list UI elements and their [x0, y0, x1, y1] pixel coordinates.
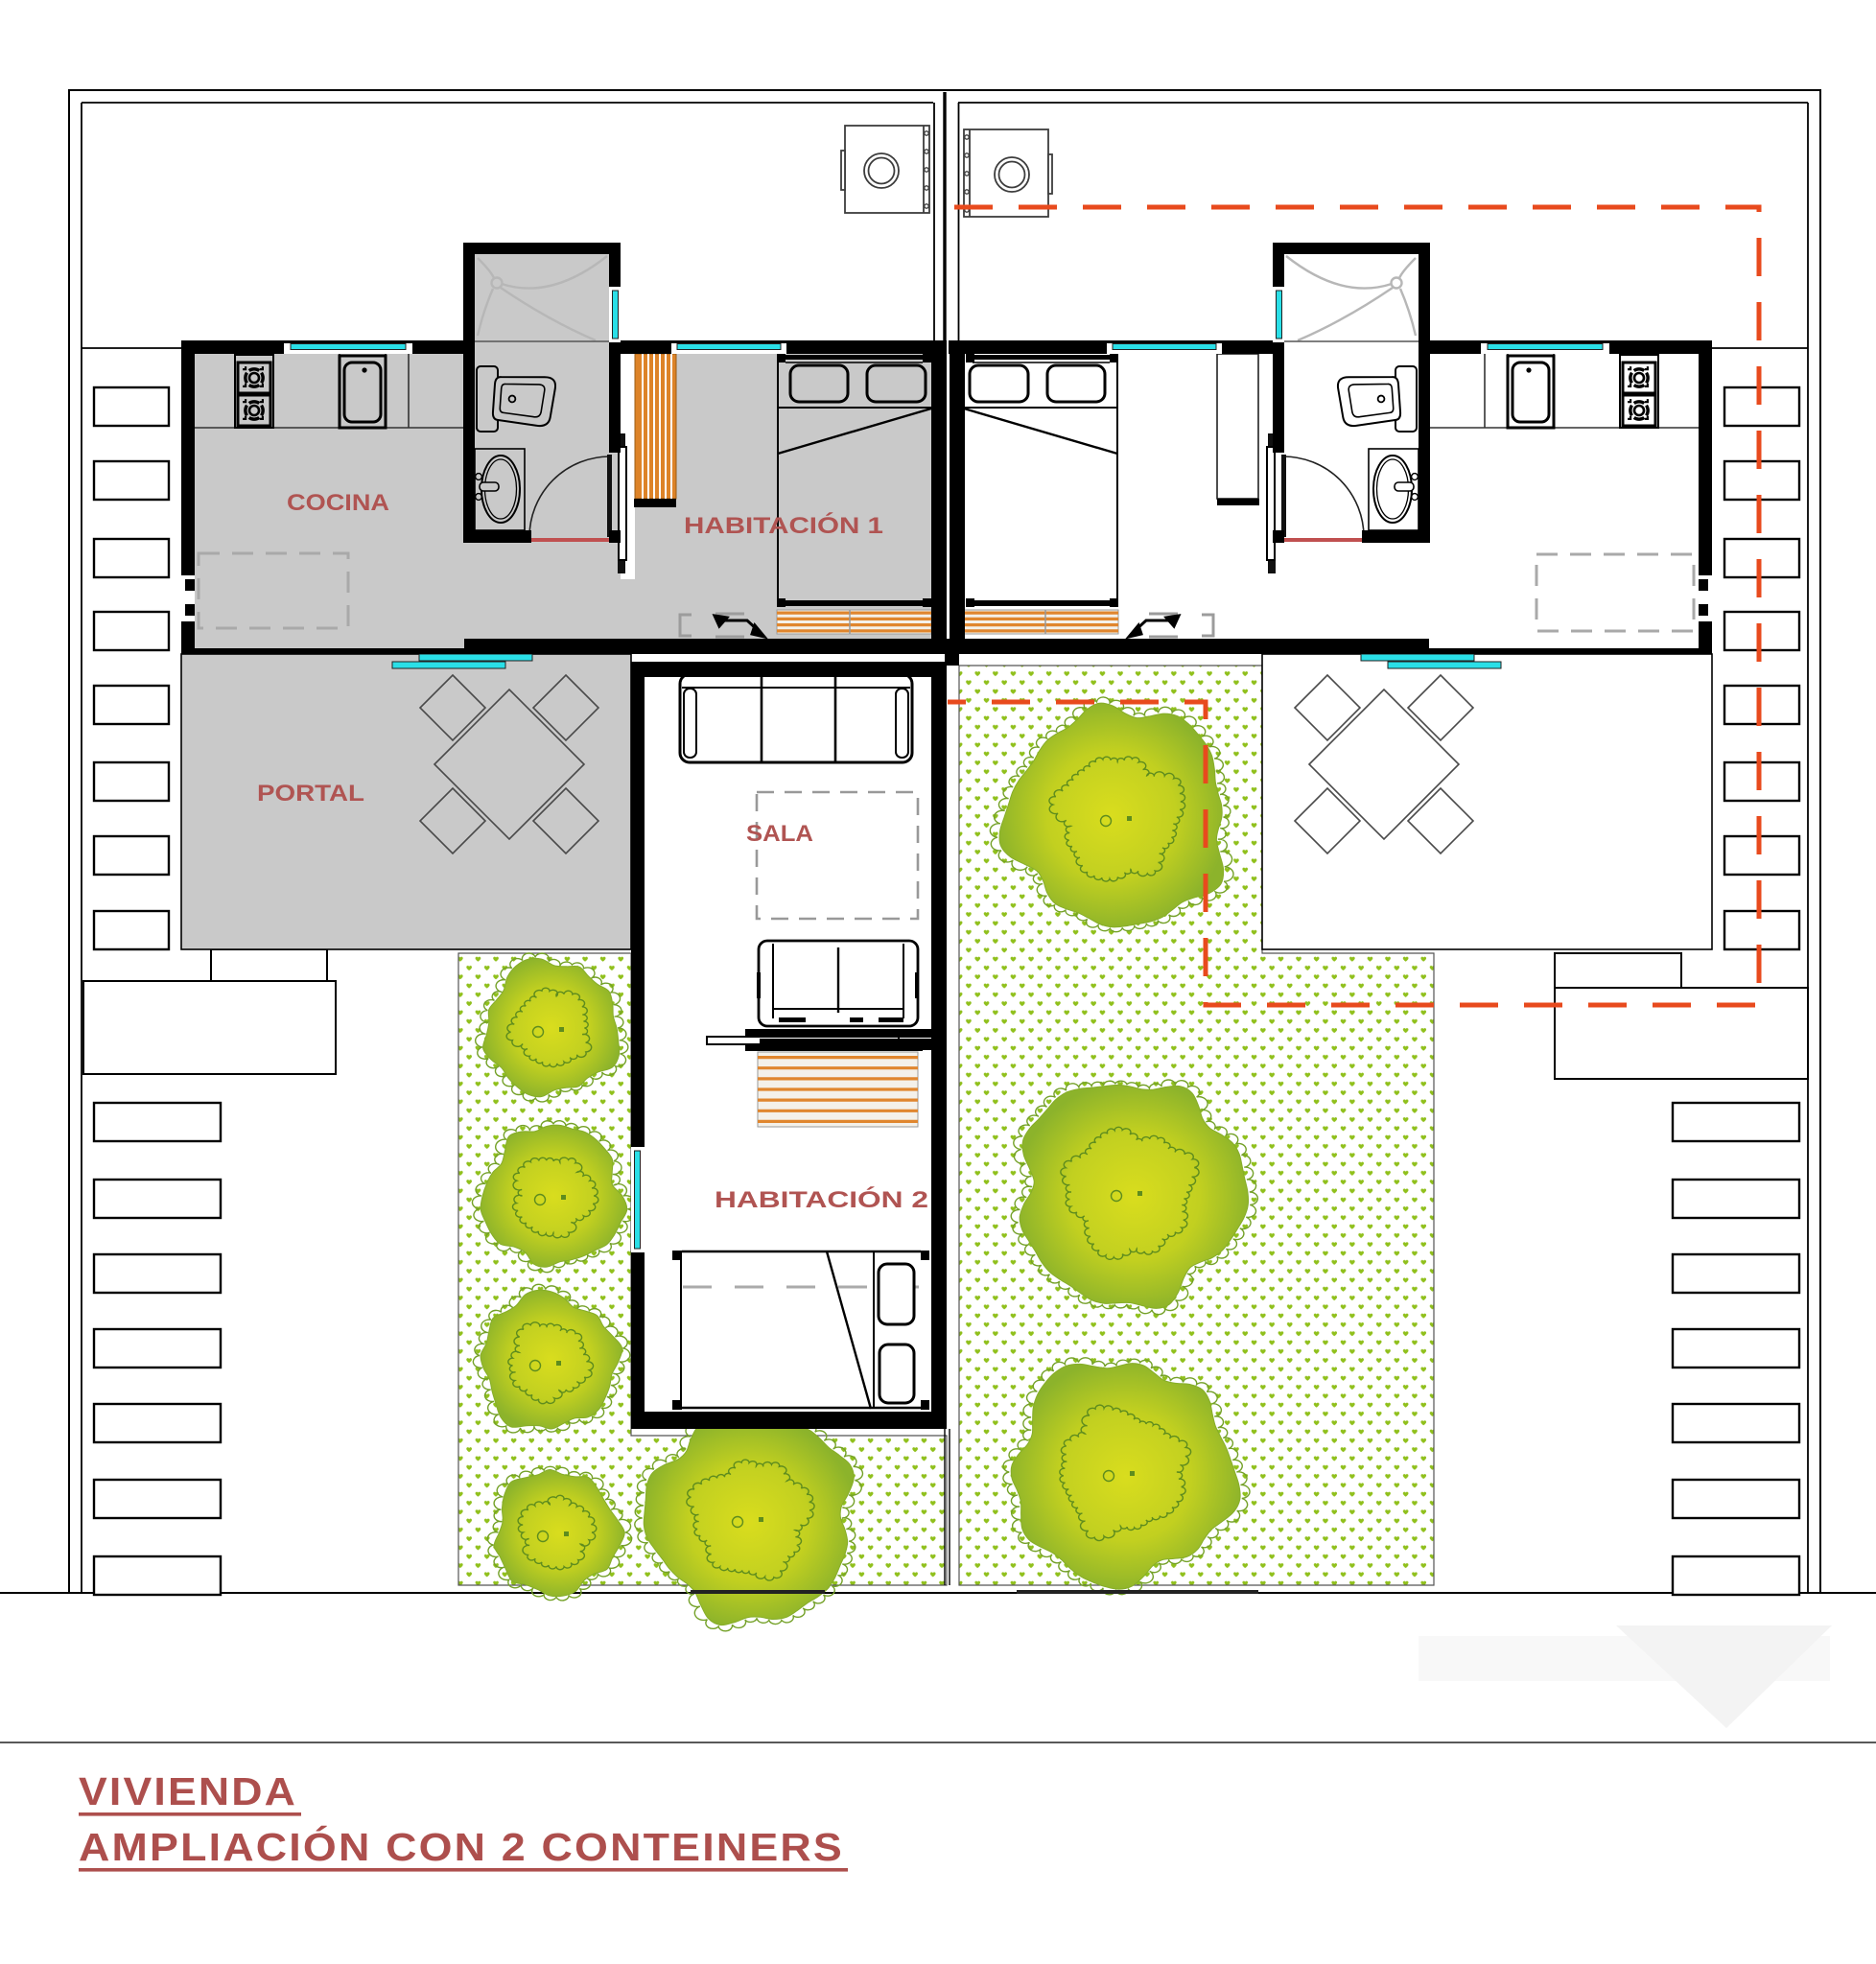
svg-text:AMPLIACIÓN CON 2 CONTEINERS: AMPLIACIÓN CON 2 CONTEINERS: [79, 1825, 844, 1869]
svg-text:HABITACIÓN 1: HABITACIÓN 1: [684, 512, 883, 539]
svg-text:SALA: SALA: [746, 821, 813, 847]
svg-text:VIVIENDA: VIVIENDA: [79, 1769, 297, 1813]
svg-text:PORTAL: PORTAL: [257, 781, 364, 807]
svg-text:COCINA: COCINA: [287, 490, 389, 516]
svg-text:HABITACIÓN 2: HABITACIÓN 2: [715, 1186, 928, 1213]
